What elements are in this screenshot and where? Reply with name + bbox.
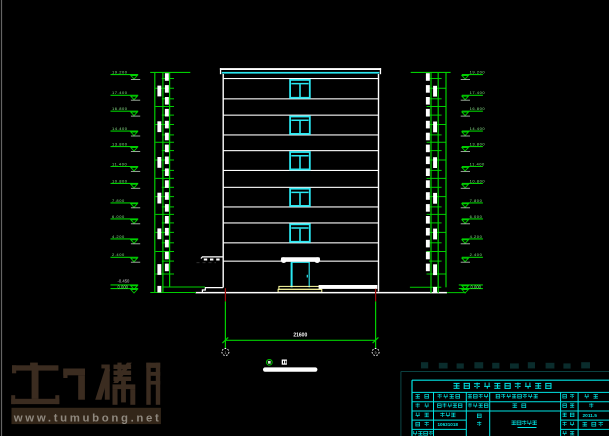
svg-text:11.400: 11.400 (112, 161, 127, 166)
svg-text:1: 1 (224, 351, 226, 355)
svg-text:4.200: 4.200 (470, 234, 483, 239)
svg-text:7.800: 7.800 (112, 198, 125, 203)
svg-text:6.000: 6.000 (112, 214, 125, 219)
svg-text:10.800: 10.800 (470, 178, 486, 183)
svg-text:21600: 21600 (293, 333, 307, 339)
svg-text:10631018: 10631018 (438, 422, 459, 427)
svg-text:13.800: 13.800 (112, 142, 128, 147)
svg-text:-0.450: -0.450 (118, 278, 131, 283)
svg-text:0.000: 0.000 (471, 284, 482, 289)
svg-text:14.400: 14.400 (112, 126, 128, 131)
svg-text:13.800: 13.800 (470, 142, 486, 147)
svg-text:2.400: 2.400 (112, 252, 125, 257)
svg-text:19.200: 19.200 (112, 70, 128, 75)
svg-text:4.200: 4.200 (112, 234, 125, 239)
svg-text:2.400: 2.400 (470, 252, 483, 257)
svg-text:11.400: 11.400 (470, 161, 485, 166)
svg-text:14.400: 14.400 (470, 126, 486, 131)
svg-text:16.800: 16.800 (112, 106, 128, 111)
svg-text:2011.5: 2011.5 (583, 413, 598, 419)
svg-text:10.800: 10.800 (112, 178, 128, 183)
svg-text:www.tumubong.net: www.tumubong.net (13, 412, 162, 424)
svg-text:6.000: 6.000 (470, 214, 483, 219)
svg-text:16.800: 16.800 (470, 106, 486, 111)
svg-text:17.400: 17.400 (470, 90, 486, 95)
svg-text:17.400: 17.400 (112, 90, 128, 95)
svg-text:9: 9 (375, 351, 377, 355)
svg-text:7.800: 7.800 (470, 198, 483, 203)
svg-text:0.000: 0.000 (118, 284, 129, 289)
svg-text:19.200: 19.200 (470, 70, 486, 75)
